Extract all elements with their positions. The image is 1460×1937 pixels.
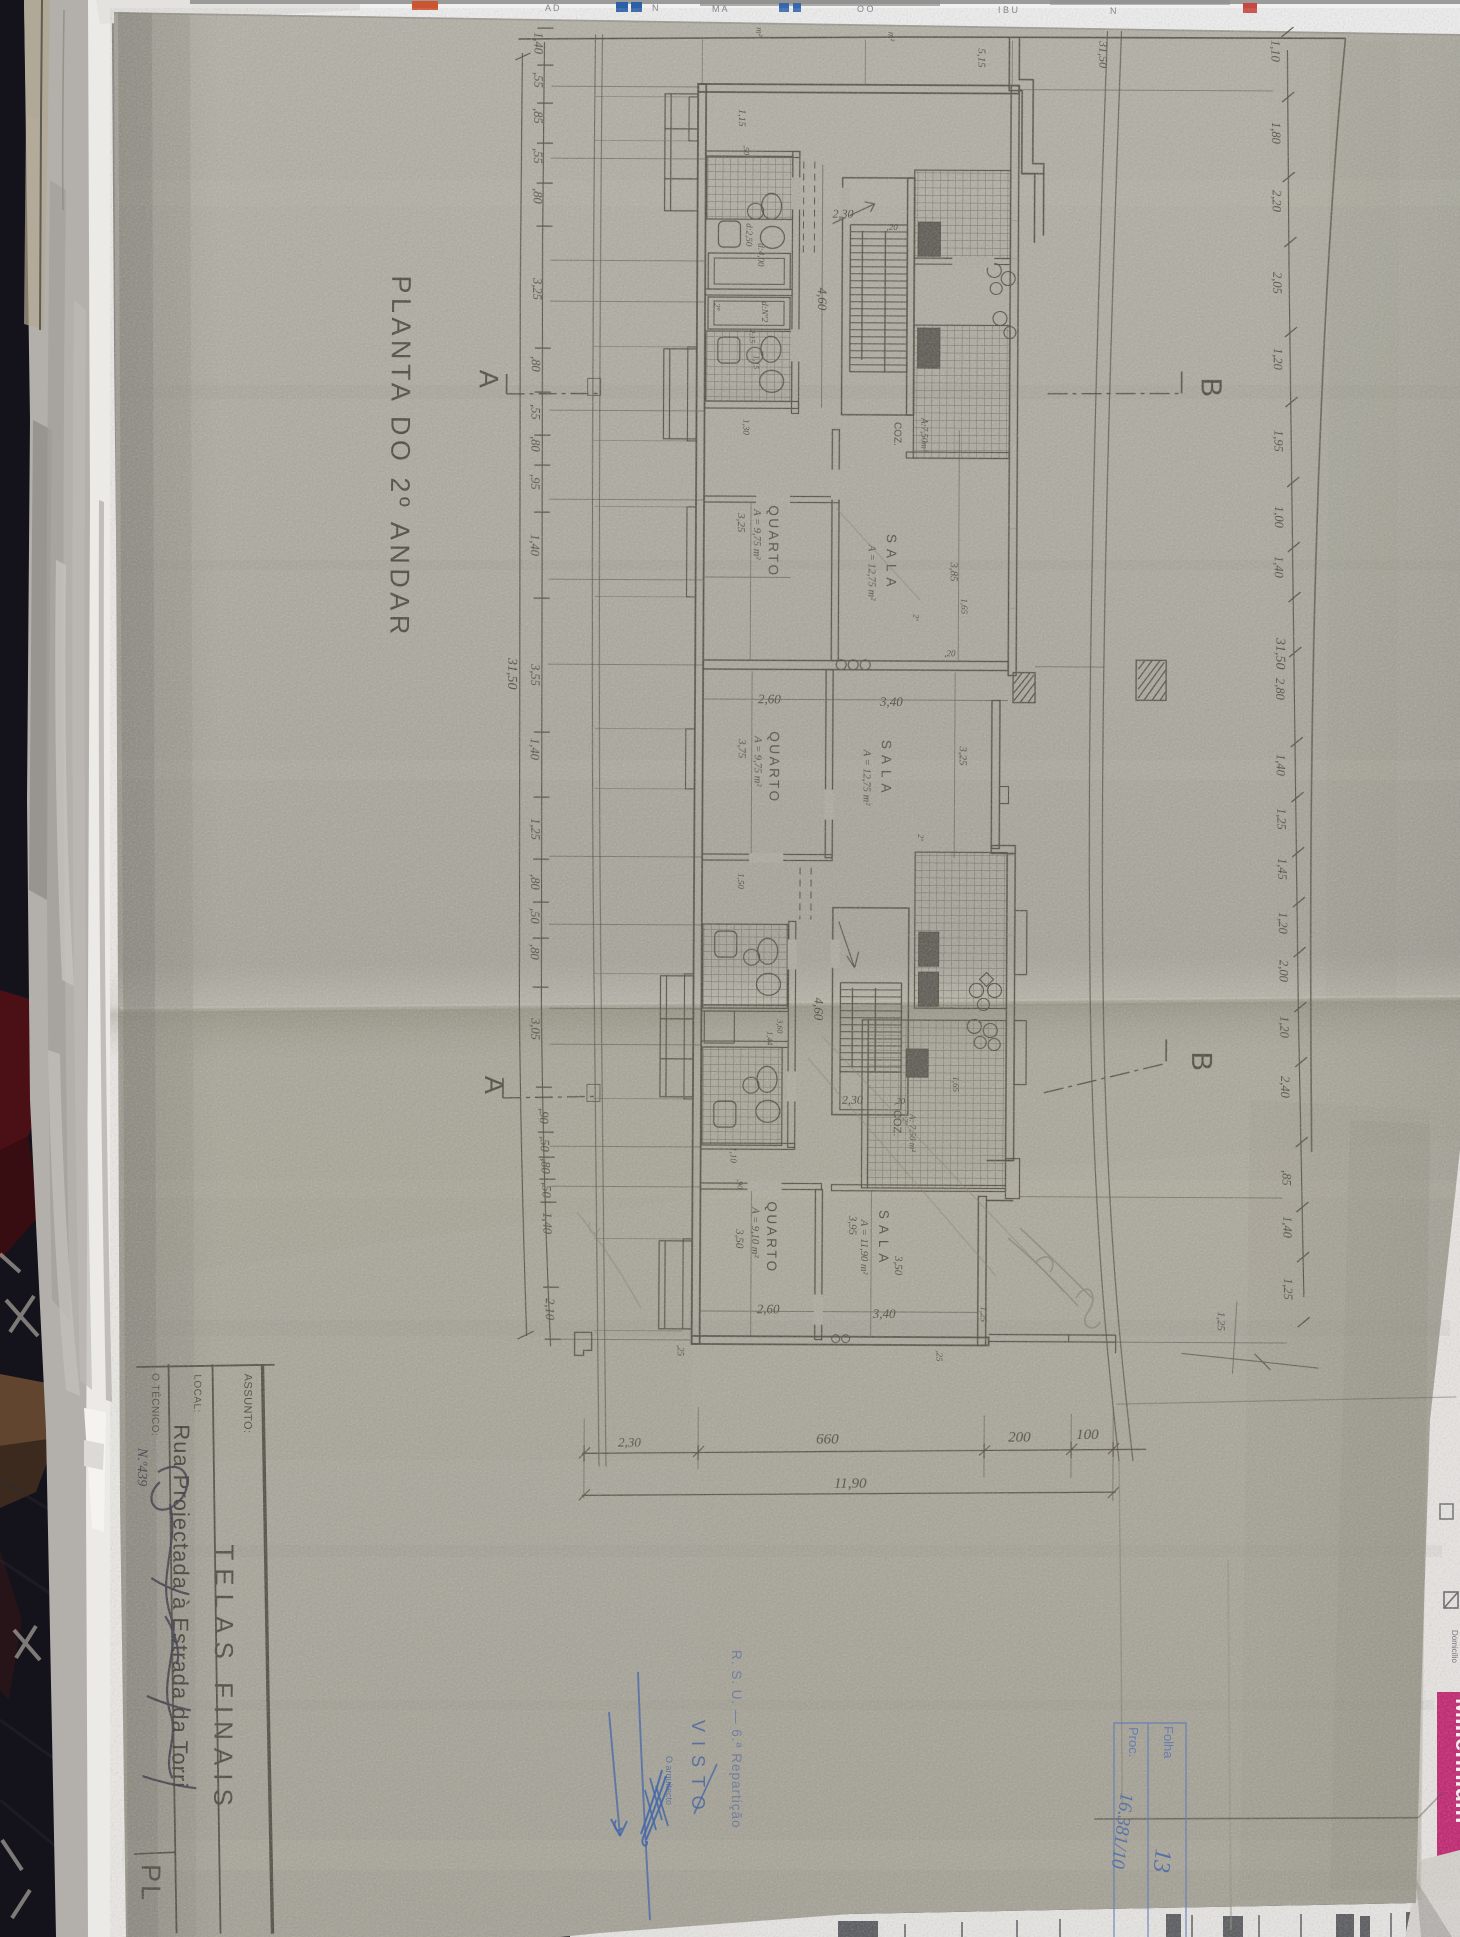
svg-text:Proc.: Proc. bbox=[1126, 1727, 1141, 1757]
svg-text:Folha: Folha bbox=[1161, 1726, 1176, 1759]
svg-text:R. S. U. — 6.ª Repartição: R. S. U. — 6.ª Repartição bbox=[729, 1650, 744, 1829]
svg-text:13: 13 bbox=[1148, 1847, 1176, 1874]
